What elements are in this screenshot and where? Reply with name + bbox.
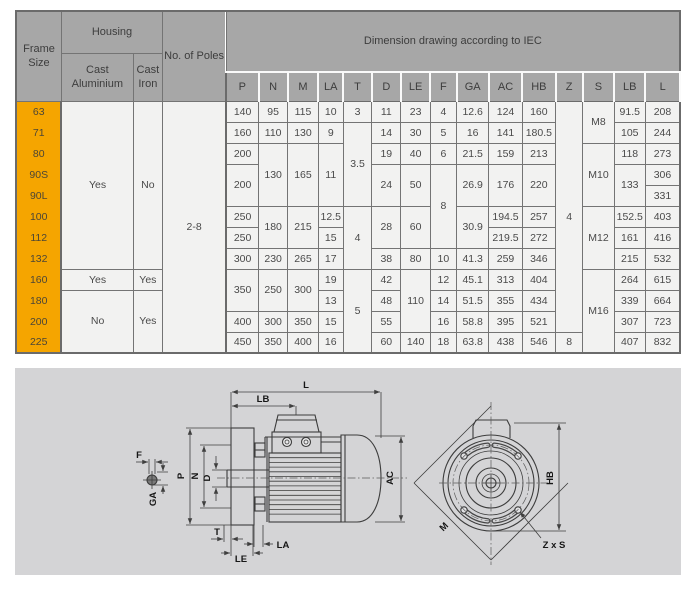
frame-size-cell: 71 [16, 122, 61, 143]
value-cell: 272 [522, 227, 555, 248]
frame-size-cell: 200 [16, 311, 61, 332]
value-cell: 213 [522, 143, 555, 164]
value-cell: 438 [489, 332, 522, 353]
value-cell: 28 [372, 206, 401, 248]
value-cell: 159 [489, 143, 522, 164]
value-cell: M10 [583, 143, 614, 206]
dim-col-header-ac: AC [489, 72, 522, 101]
value-cell: 313 [489, 269, 522, 290]
dim-col-header-le: LE [401, 72, 430, 101]
dim-label-n: N [190, 472, 201, 479]
dim-col-header-t: T [343, 72, 371, 101]
frame-size-cell: 180 [16, 290, 61, 311]
value-cell: 4 [343, 206, 371, 269]
value-cell: Yes [61, 269, 133, 290]
value-cell: 355 [489, 290, 522, 311]
value-cell: 450 [226, 332, 258, 353]
value-cell: 3.5 [343, 122, 371, 206]
dim-col-header-l: L [645, 72, 680, 101]
dim-col-header-z: Z [556, 72, 583, 101]
value-cell: 215 [614, 248, 645, 269]
value-cell: 532 [645, 248, 680, 269]
value-cell: 95 [259, 101, 288, 122]
value-cell: 60 [372, 332, 401, 353]
value-cell: 11 [318, 143, 343, 206]
value-cell: 546 [522, 332, 555, 353]
dimension-drawing-header: Dimension drawing according to IEC [226, 11, 680, 72]
value-cell: 219.5 [489, 227, 522, 248]
dim-label-t: T [214, 527, 220, 538]
value-cell: 331 [645, 185, 680, 206]
value-cell: 4 [430, 101, 456, 122]
value-cell: 395 [489, 311, 522, 332]
value-cell: 9 [318, 122, 343, 143]
dim-label-d: D [202, 474, 213, 481]
frame-size-cell: 160 [16, 269, 61, 290]
motor-dimension-drawing: L LB AC P N D F GA T LA LE M HB Z x S [15, 368, 681, 575]
table-body: 63YesNo2-8140951151031123412.61241604M89… [16, 101, 680, 353]
dim-col-header-m: M [288, 72, 318, 101]
value-cell: 15 [318, 311, 343, 332]
value-cell: 38 [372, 248, 401, 269]
value-cell: 307 [614, 311, 645, 332]
dim-label-la: LA [277, 540, 290, 551]
value-cell: 250 [226, 206, 258, 227]
value-cell: 264 [614, 269, 645, 290]
value-cell: Yes [133, 269, 162, 290]
value-cell: 339 [614, 290, 645, 311]
frame-size-cell: 225 [16, 332, 61, 353]
value-cell: 250 [259, 269, 288, 311]
value-cell: 407 [614, 332, 645, 353]
dim-col-header-n: N [259, 72, 288, 101]
value-cell: 300 [226, 248, 258, 269]
value-cell: 80 [401, 248, 430, 269]
value-cell: 176 [489, 164, 522, 206]
value-cell: 244 [645, 122, 680, 143]
value-cell: 664 [645, 290, 680, 311]
cast-aluminium-header: Cast Aluminium [61, 53, 133, 101]
value-cell: 273 [645, 143, 680, 164]
motor-side-view [143, 415, 381, 525]
dim-label-le: LE [235, 554, 247, 565]
dim-col-header-la: LA [318, 72, 343, 101]
value-cell: No [133, 101, 162, 269]
value-cell: 257 [522, 206, 555, 227]
value-cell: 8 [430, 164, 456, 248]
value-cell: 14 [430, 290, 456, 311]
value-cell: 165 [288, 143, 318, 206]
value-cell: 5 [430, 122, 456, 143]
value-cell: 3 [343, 101, 371, 122]
dim-col-header-p: P [226, 72, 258, 101]
value-cell: 30.9 [457, 206, 489, 248]
value-cell: 265 [288, 248, 318, 269]
value-cell: M8 [583, 101, 614, 143]
dim-col-header-f: F [430, 72, 456, 101]
value-cell: 8 [556, 332, 583, 353]
value-cell: 180.5 [522, 122, 555, 143]
value-cell: 250 [226, 227, 258, 248]
value-cell: 42 [372, 269, 401, 290]
value-cell: 19 [372, 143, 401, 164]
value-cell: 403 [645, 206, 680, 227]
value-cell: 346 [522, 248, 555, 269]
value-cell: 17 [318, 248, 343, 269]
value-cell: 12 [430, 269, 456, 290]
value-cell: 160 [226, 122, 258, 143]
value-cell: 124 [489, 101, 522, 122]
value-cell: 130 [288, 122, 318, 143]
value-cell: 110 [259, 122, 288, 143]
value-cell: 118 [614, 143, 645, 164]
value-cell: 12.5 [318, 206, 343, 227]
value-cell: 63.8 [457, 332, 489, 353]
dim-col-header-lb: LB [614, 72, 645, 101]
value-cell: 58.8 [457, 311, 489, 332]
dim-label-m: M [438, 520, 451, 533]
frame-size-cell: 90S [16, 164, 61, 185]
value-cell: 91.5 [614, 101, 645, 122]
dim-label-zxs: Z x S [543, 540, 566, 551]
dim-label-ga: GA [148, 492, 159, 506]
value-cell: 23 [401, 101, 430, 122]
dim-col-header-ga: GA [457, 72, 489, 101]
frame-size-cell: 100 [16, 206, 61, 227]
value-cell: 16 [457, 122, 489, 143]
value-cell: 11 [372, 101, 401, 122]
value-cell: 404 [522, 269, 555, 290]
value-cell: 434 [522, 290, 555, 311]
dim-label-lb: LB [257, 394, 270, 405]
value-cell: 160 [522, 101, 555, 122]
value-cell: 141 [489, 122, 522, 143]
value-cell: 60 [401, 206, 430, 248]
value-cell: 4 [556, 101, 583, 332]
value-cell: 40 [401, 143, 430, 164]
dim-label-p: P [176, 472, 187, 479]
value-cell: 16 [318, 332, 343, 353]
dim-col-header-s: S [583, 72, 614, 101]
value-cell: 18 [430, 332, 456, 353]
frame-size-cell: 112 [16, 227, 61, 248]
iec-dimension-table: Frame Size Housing No. of Poles Dimensio… [15, 10, 681, 354]
value-cell: 832 [645, 332, 680, 353]
value-cell: 194.5 [489, 206, 522, 227]
value-cell: 220 [522, 164, 555, 206]
value-cell: 215 [288, 206, 318, 248]
value-cell: Yes [61, 101, 133, 269]
value-cell: 200 [226, 143, 258, 164]
frame-size-cell: 90L [16, 185, 61, 206]
value-cell: 21.5 [457, 143, 489, 164]
value-cell: 51.5 [457, 290, 489, 311]
value-cell: 350 [226, 269, 258, 311]
frame-size-cell: 80 [16, 143, 61, 164]
cast-iron-header: Cast Iron [133, 53, 162, 101]
value-cell: 180 [259, 206, 288, 248]
value-cell: 5 [343, 269, 371, 353]
housing-header: Housing [61, 11, 162, 53]
frame-size-cell: 63 [16, 101, 61, 122]
value-cell: 41.3 [457, 248, 489, 269]
value-cell: Yes [133, 290, 162, 353]
value-cell: 521 [522, 311, 555, 332]
value-cell: 140 [401, 332, 430, 353]
value-cell: 416 [645, 227, 680, 248]
value-cell: 16 [430, 311, 456, 332]
value-cell: M16 [583, 269, 614, 353]
value-cell: 6 [430, 143, 456, 164]
value-cell: 48 [372, 290, 401, 311]
value-cell: 152.5 [614, 206, 645, 227]
dim-label-ac: AC [385, 471, 396, 485]
value-cell: 45.1 [457, 269, 489, 290]
value-cell: 350 [259, 332, 288, 353]
value-cell: 200 [226, 164, 258, 206]
value-cell: 2-8 [163, 101, 227, 353]
frame-size-header: Frame Size [16, 11, 61, 101]
value-cell: 30 [401, 122, 430, 143]
value-cell: 400 [226, 311, 258, 332]
dim-label-f: F [136, 450, 142, 461]
value-cell: 13 [318, 290, 343, 311]
dim-label-l: L [303, 380, 309, 391]
value-cell: 723 [645, 311, 680, 332]
value-cell: 110 [401, 269, 430, 332]
value-cell: 615 [645, 269, 680, 290]
value-cell: 259 [489, 248, 522, 269]
poles-header: No. of Poles [163, 11, 227, 101]
value-cell: 24 [372, 164, 401, 206]
value-cell: 55 [372, 311, 401, 332]
value-cell: 10 [430, 248, 456, 269]
value-cell: 50 [401, 164, 430, 206]
value-cell: 115 [288, 101, 318, 122]
frame-size-cell: 132 [16, 248, 61, 269]
value-cell: 350 [288, 311, 318, 332]
dimension-drawing-panel: L LB AC P N D F GA T LA LE M HB Z x S [15, 368, 681, 575]
value-cell: 133 [614, 164, 645, 206]
value-cell: 306 [645, 164, 680, 185]
dim-col-header-hb: HB [522, 72, 555, 101]
value-cell: 300 [259, 311, 288, 332]
value-cell: 230 [259, 248, 288, 269]
value-cell: 10 [318, 101, 343, 122]
value-cell: No [61, 290, 133, 353]
value-cell: 105 [614, 122, 645, 143]
value-cell: 400 [288, 332, 318, 353]
value-cell: 161 [614, 227, 645, 248]
value-cell: 140 [226, 101, 258, 122]
value-cell: 19 [318, 269, 343, 290]
dim-label-hb: HB [545, 471, 556, 485]
value-cell: 300 [288, 269, 318, 311]
value-cell: 26.9 [457, 164, 489, 206]
value-cell: 12.6 [457, 101, 489, 122]
dim-col-header-d: D [372, 72, 401, 101]
value-cell: 14 [372, 122, 401, 143]
value-cell: 130 [259, 143, 288, 206]
value-cell: 15 [318, 227, 343, 248]
value-cell: M12 [583, 206, 614, 269]
value-cell: 208 [645, 101, 680, 122]
